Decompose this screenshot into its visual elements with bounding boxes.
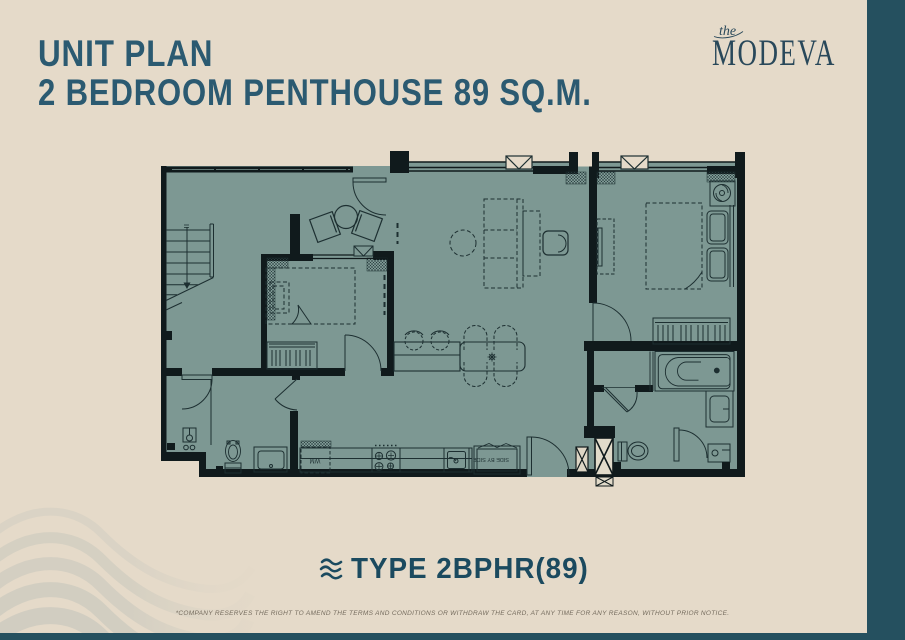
svg-text:WM: WM [310,457,321,463]
svg-text:SIDE BY SIDE: SIDE BY SIDE [473,456,509,462]
